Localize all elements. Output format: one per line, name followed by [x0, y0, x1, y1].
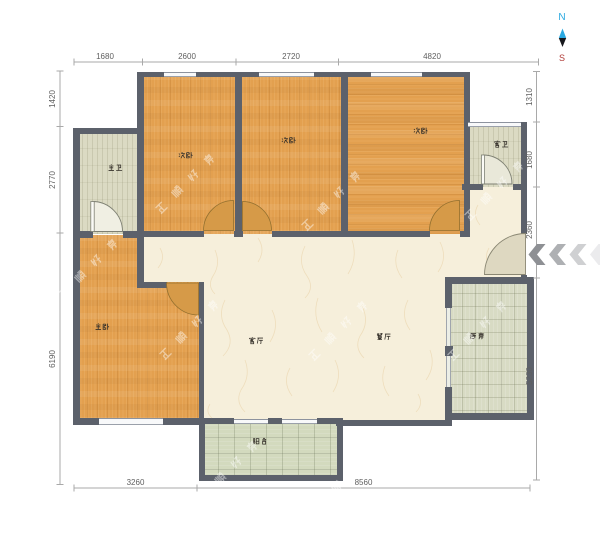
svg-text:S: S: [559, 53, 565, 63]
svg-text:6190: 6190: [48, 350, 57, 368]
svg-text:2720: 2720: [282, 52, 300, 61]
svg-text:2770: 2770: [48, 171, 57, 189]
svg-text:5230: 5230: [525, 367, 534, 385]
svg-text:4820: 4820: [423, 52, 441, 61]
svg-text:3260: 3260: [127, 478, 145, 487]
svg-text:N: N: [558, 12, 565, 23]
svg-text:2360: 2360: [525, 221, 534, 239]
svg-text:1310: 1310: [525, 88, 534, 106]
svg-text:1680: 1680: [96, 52, 114, 61]
svg-text:1420: 1420: [48, 90, 57, 108]
svg-text:2600: 2600: [178, 52, 196, 61]
svg-text:8560: 8560: [355, 478, 373, 487]
svg-text:1680: 1680: [525, 151, 534, 169]
